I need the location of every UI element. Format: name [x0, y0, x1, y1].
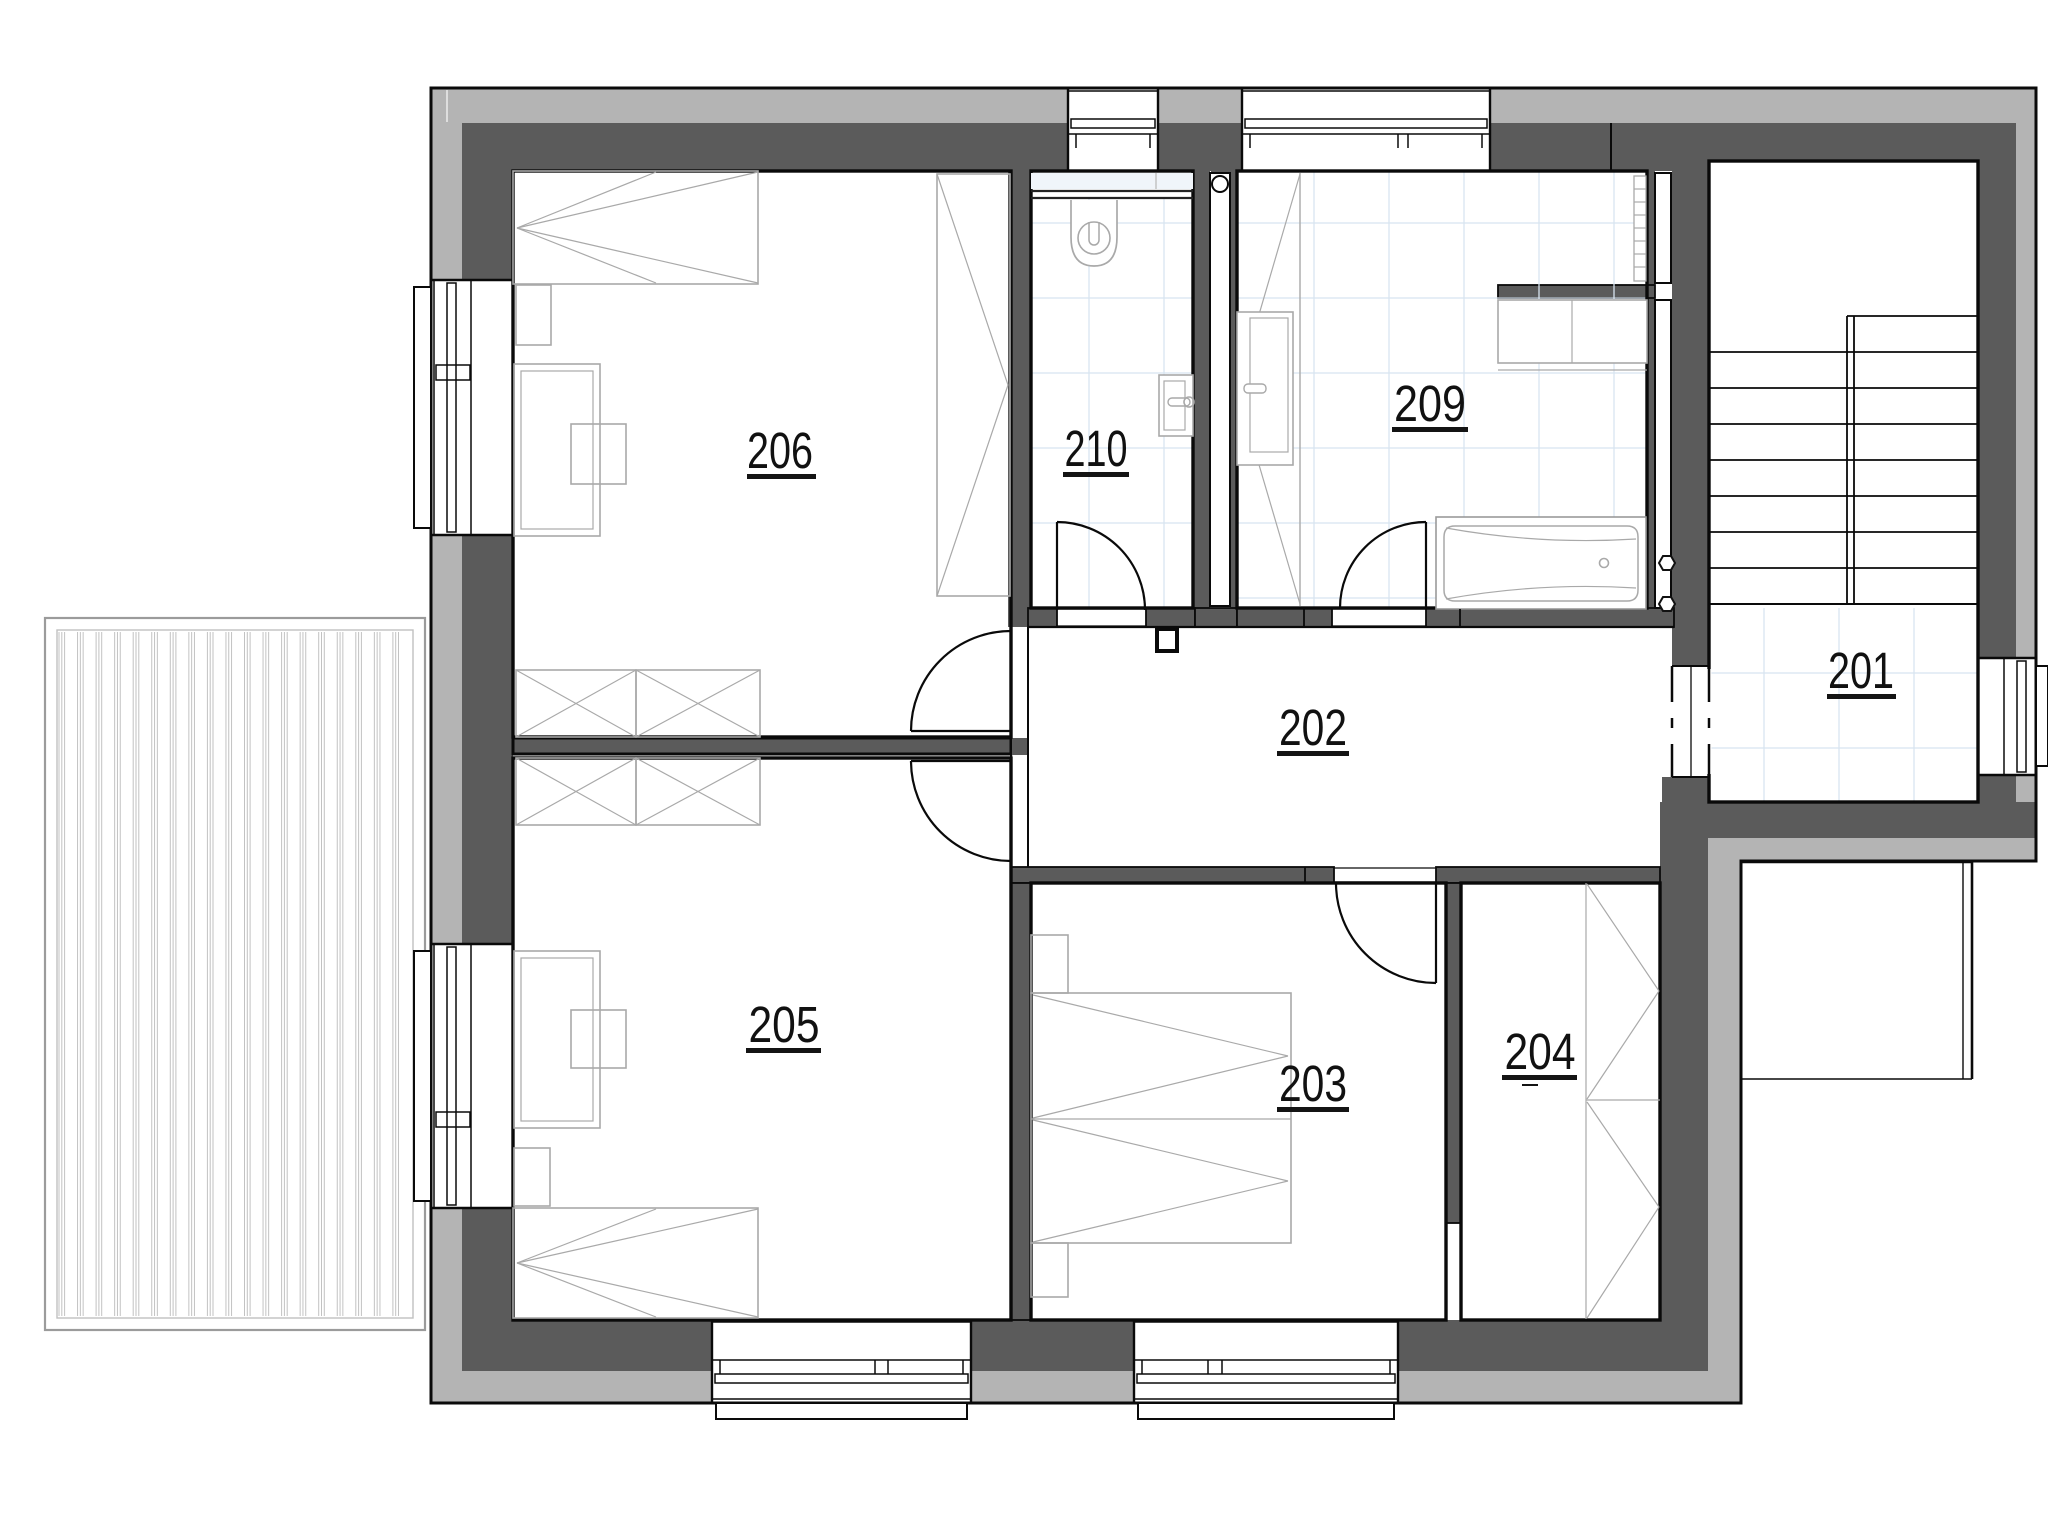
- svg-text:209: 209: [1394, 375, 1466, 432]
- svg-text:204: 204: [1505, 1023, 1576, 1080]
- svg-text:206: 206: [747, 422, 813, 479]
- svg-text:210: 210: [1065, 420, 1128, 477]
- svg-text:202: 202: [1279, 699, 1347, 756]
- svg-text:203: 203: [1279, 1055, 1347, 1112]
- svg-text:201: 201: [1828, 642, 1894, 699]
- svg-text:205: 205: [749, 996, 820, 1053]
